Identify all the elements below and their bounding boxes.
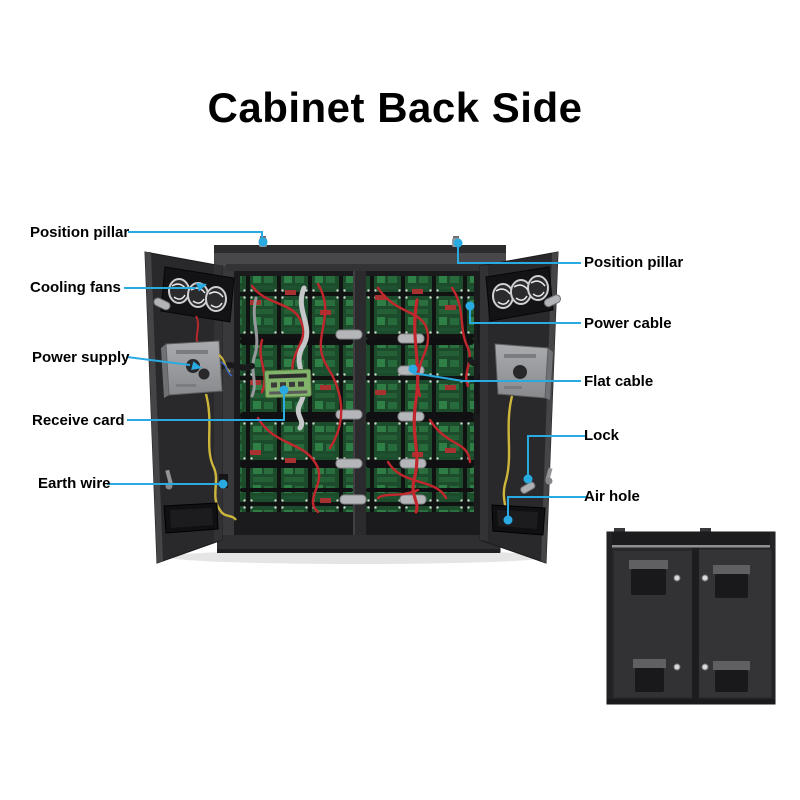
cabinet-bottom-bar: [217, 535, 500, 553]
label-earth-wire: Earth wire: [38, 475, 111, 493]
receive-card: [265, 369, 312, 398]
cabinet-back-open-view: [145, 236, 562, 564]
dot-position-pillar-left: [259, 238, 268, 247]
label-cooling-fans: Cooling fans: [30, 279, 121, 297]
infographic-canvas: Cabinet Back Side: [0, 0, 800, 800]
dot-lock: [524, 475, 533, 484]
label-air-hole: Air hole: [584, 488, 640, 506]
label-power-supply: Power supply: [32, 349, 130, 367]
vent-left: [164, 503, 218, 533]
dot-power-cable: [466, 302, 475, 311]
leader-position-pillar-left: [128, 232, 262, 238]
dot-earth-wire: [219, 480, 228, 489]
dot-air-hole: [504, 516, 513, 525]
dot-receive-card: [280, 386, 289, 395]
label-receive-card: Receive card: [32, 412, 125, 430]
power-supply-right: [495, 344, 553, 400]
vent-right-air-hole: [492, 505, 545, 535]
label-position-pillar-left: Position pillar: [30, 224, 129, 242]
label-position-pillar-right: Position pillar: [584, 254, 683, 272]
label-power-cable: Power cable: [584, 315, 672, 333]
cabinet-illustration: [0, 0, 800, 800]
left-door: [145, 252, 236, 563]
cabinet-top-bar: [214, 236, 506, 271]
label-flat-cable: Flat cable: [584, 373, 653, 391]
cabinet-back-closed-view: [607, 528, 775, 704]
dot-position-pillar-right: [454, 239, 463, 248]
label-lock: Lock: [584, 427, 619, 445]
dot-flat-cable: [409, 365, 418, 374]
right-door: [480, 252, 562, 563]
